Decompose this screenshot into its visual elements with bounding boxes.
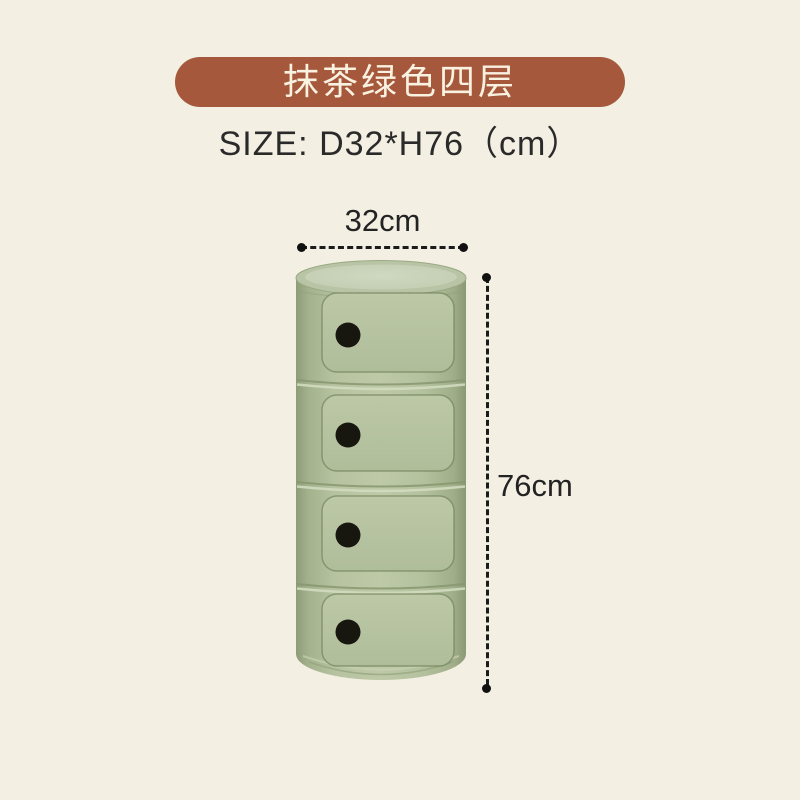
drawer-module xyxy=(322,395,454,471)
width-dimension-line xyxy=(301,246,464,249)
height-dimension-line xyxy=(486,277,489,685)
dimension-endpoint-dot xyxy=(482,273,491,282)
width-dimension-label: 32cm xyxy=(300,203,465,239)
drawer-knob xyxy=(336,523,361,548)
drawer-module xyxy=(322,496,454,571)
size-spec-text: SIZE: D32*H76（cm） xyxy=(0,116,800,165)
height-dimension-label: 76cm xyxy=(497,468,573,504)
variant-banner-label: 抹茶绿色四层 xyxy=(283,64,517,100)
drawer-knob xyxy=(336,620,361,645)
drawer-knob xyxy=(336,423,361,448)
product-card: 抹茶绿色四层 SIZE: D32*H76（cm） 32cm 76cm xyxy=(0,0,800,800)
drawer-module xyxy=(322,594,454,666)
cabinet-illustration xyxy=(295,260,467,690)
dimension-endpoint-dot xyxy=(297,243,306,252)
drawer-module xyxy=(322,293,454,372)
variant-banner: 抹茶绿色四层 xyxy=(175,57,625,107)
dimension-endpoint-dot xyxy=(482,684,491,693)
drawer-knob xyxy=(336,323,361,348)
cabinet-top-lid-surface xyxy=(305,265,457,290)
dimension-endpoint-dot xyxy=(459,243,468,252)
